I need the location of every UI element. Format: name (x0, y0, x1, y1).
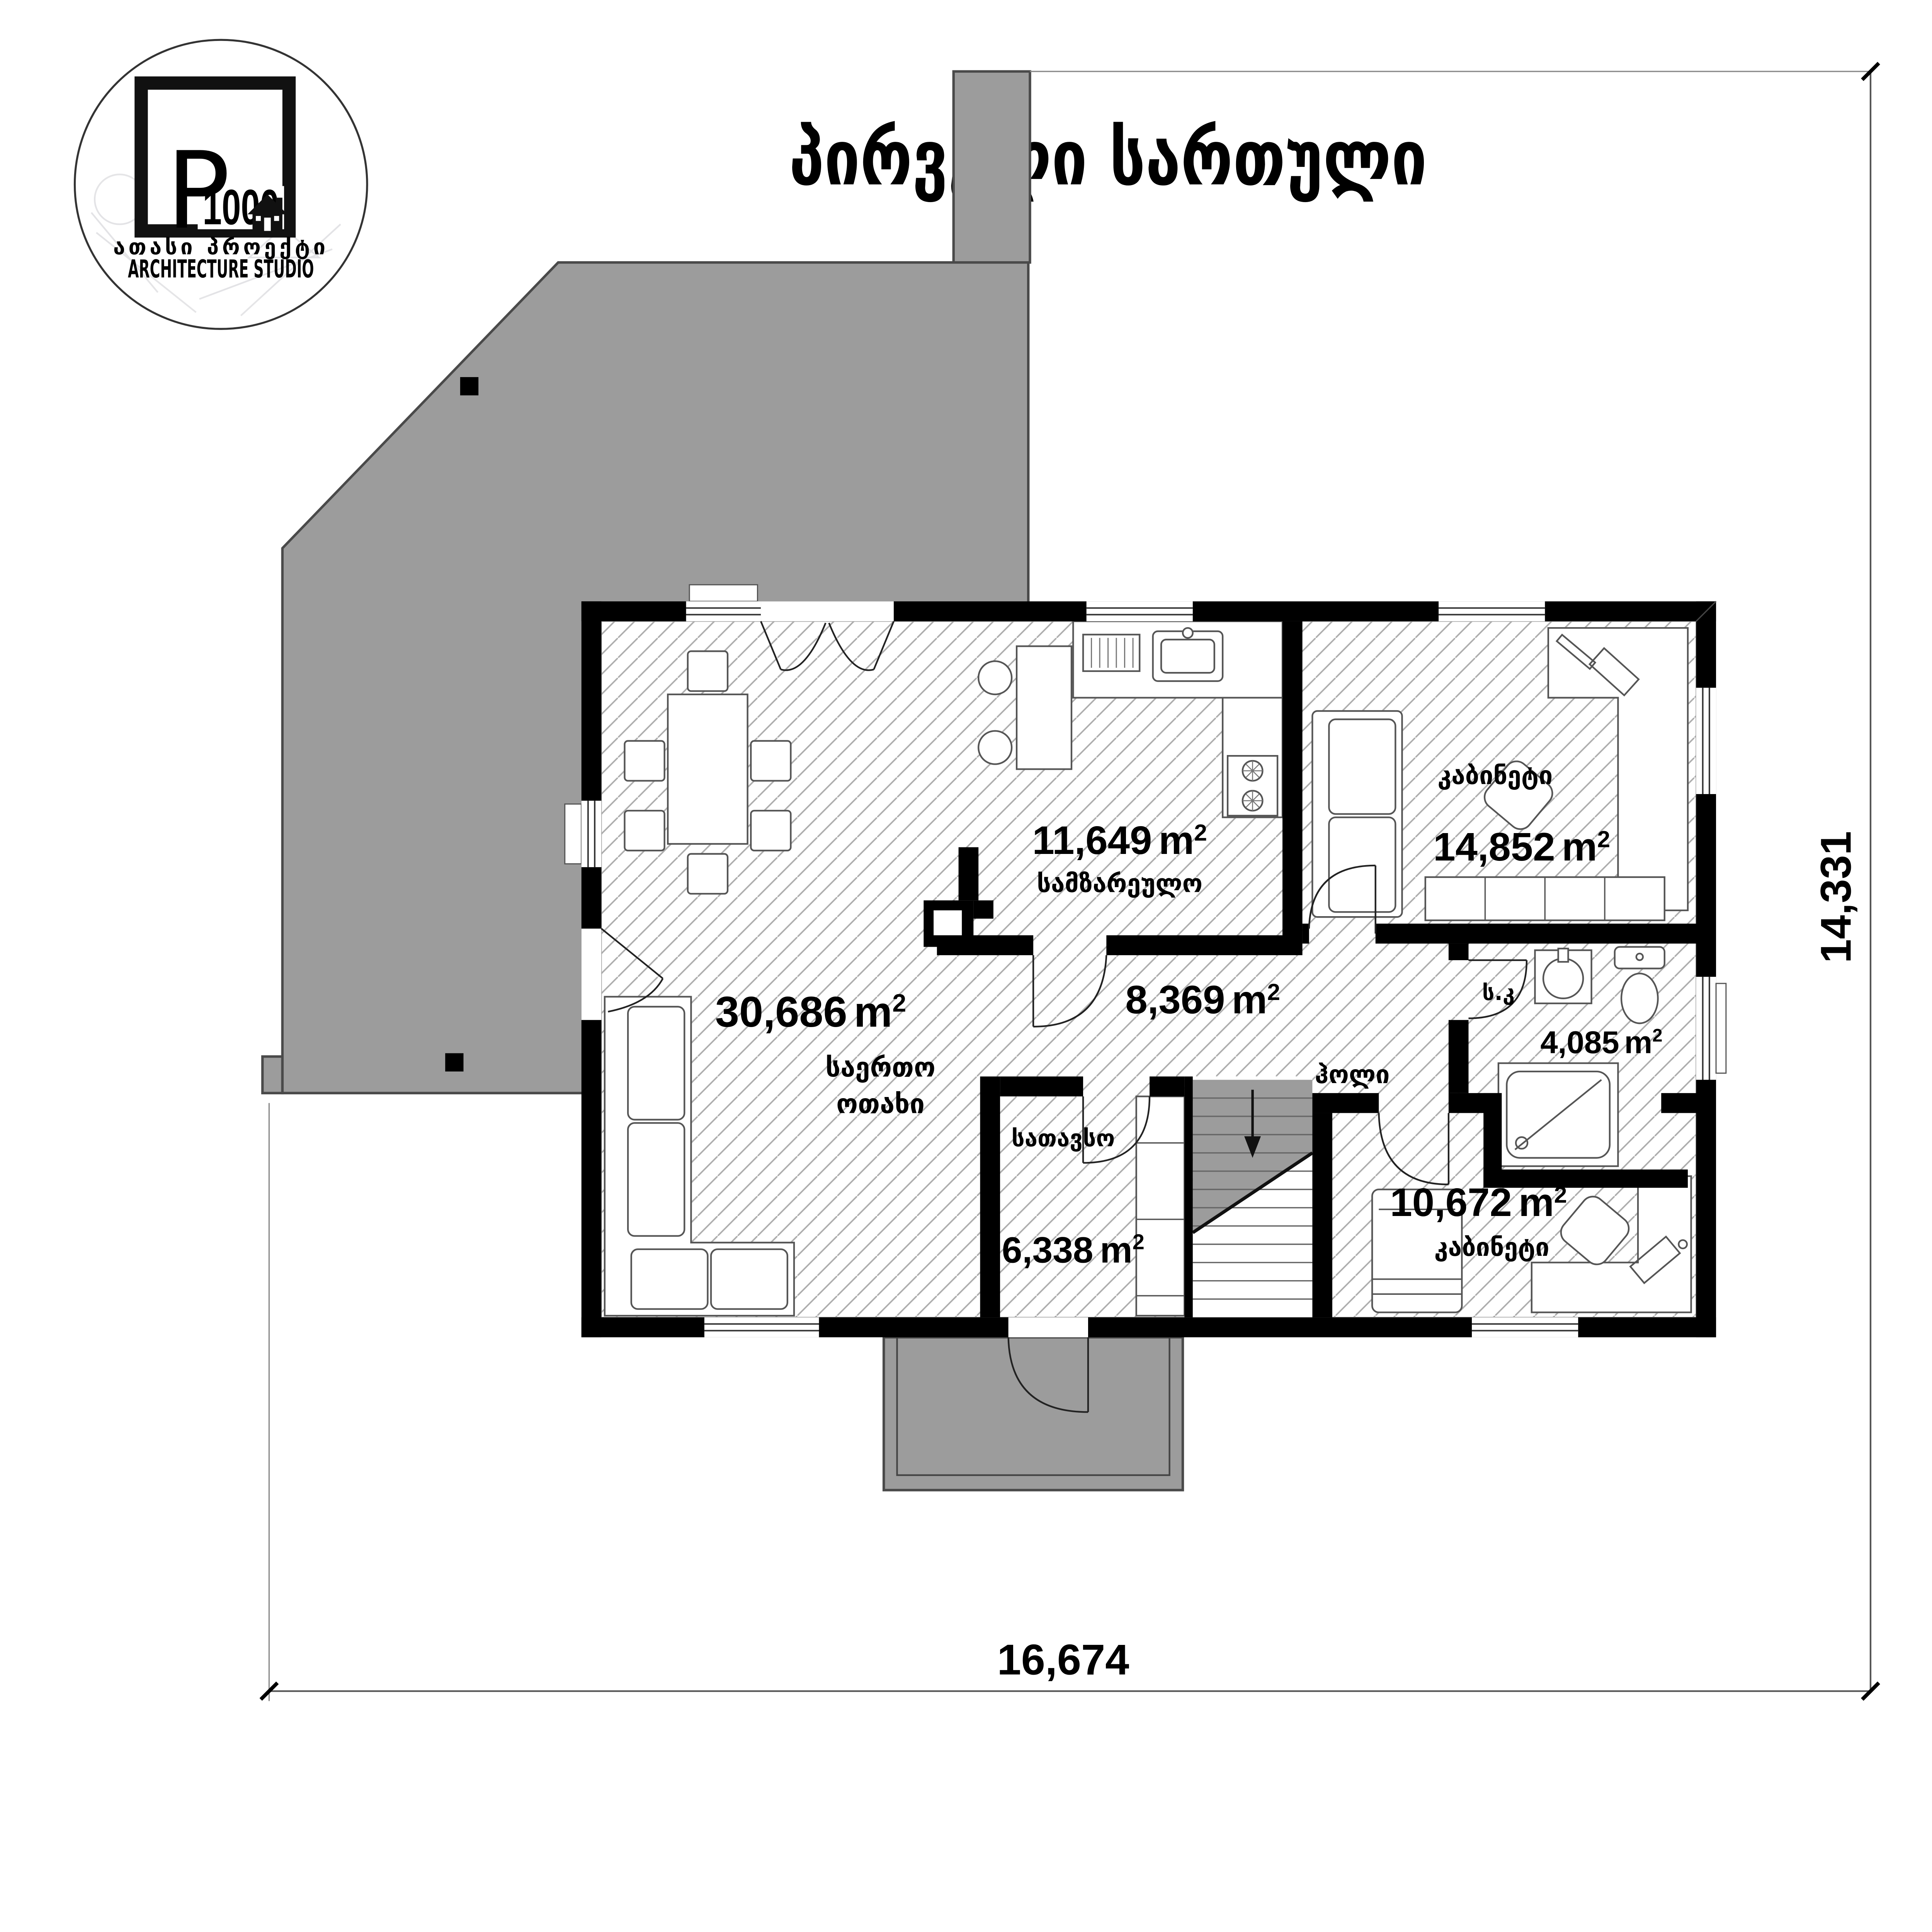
dining-chair (751, 811, 791, 850)
window-sill (689, 585, 757, 601)
room-name: ს.კ (1482, 980, 1515, 1005)
entrance-porch (884, 1337, 1183, 1490)
svg-text:4,085m2: 4,085m2 (1540, 1025, 1662, 1060)
kitchen-island (1017, 646, 1071, 769)
dining-chair (688, 854, 728, 894)
window-right-office (1696, 688, 1716, 794)
wall-office-bath (1376, 923, 1696, 944)
bar-stool (978, 731, 1012, 764)
shower-tray (1498, 1063, 1618, 1167)
terrace-door-opening (582, 929, 602, 1020)
dining-chair (688, 651, 728, 691)
entrance-opening (1009, 1317, 1088, 1337)
bar-stool (978, 661, 1012, 694)
french-door-opening (761, 601, 894, 621)
window-office-upper-top (1439, 601, 1545, 621)
page-title: პირველი სართული (789, 113, 1427, 202)
window-top-living (686, 601, 761, 621)
staircase (1193, 1077, 1313, 1317)
wall-bath-office-lower (1483, 1170, 1688, 1188)
room-name: საერთო (825, 1052, 935, 1083)
cabinet-row (1425, 877, 1665, 920)
sink-tap (1558, 949, 1568, 962)
wall-kitchen-office (1282, 621, 1303, 955)
window-right-bath (1696, 977, 1716, 1080)
svg-text:10,672m2: 10,672m2 (1390, 1180, 1567, 1225)
wall-hall-office-lower (1312, 1093, 1379, 1113)
room-name: ჰოლი (1315, 1060, 1390, 1089)
dining-chair (625, 741, 665, 781)
wall-storage-top (1000, 1077, 1083, 1097)
window-sill (1716, 983, 1726, 1073)
wall-kitchen-hall (1106, 935, 1282, 955)
dining-chair (625, 811, 665, 850)
dining-chair (751, 741, 791, 781)
room-name: ოთახი (836, 1088, 925, 1119)
studio-logo: P 1000 ათასი პროექტი ARCHITECTURE STUDIO (75, 40, 367, 329)
window-bottom-office (1472, 1317, 1578, 1337)
wall-stairs-right (1312, 1113, 1332, 1317)
floor-plan-drawing: P 1000 ათასი პროექტი ARCHITECTURE STUDIO… (0, 0, 1932, 1748)
room-name: კაბინეტი (1434, 1233, 1549, 1262)
window-kitchen (1087, 601, 1193, 621)
sink-faucet (1183, 628, 1193, 638)
terrace-upper-bar (954, 71, 1030, 262)
dimension-width: 16,674 (997, 1636, 1129, 1684)
stove (1228, 756, 1277, 816)
room-name: კაბინეტი (1437, 761, 1553, 790)
logo-subtitle: ARCHITECTURE STUDIO (128, 255, 314, 284)
wall-stairs-left (1184, 1077, 1192, 1317)
room-area: 11,649 (1032, 818, 1152, 862)
window-bottom-living (704, 1317, 819, 1337)
svg-text:11,649m2: 11,649m2 (1032, 818, 1207, 862)
svg-text:30,686m2: 30,686m2 (715, 988, 906, 1036)
dish-rack (1083, 634, 1139, 671)
porch-slab (884, 1337, 1183, 1490)
svg-text:6,338m2: 6,338m2 (1002, 1230, 1145, 1270)
terrace-column (460, 377, 478, 395)
wall-storage-top (1150, 1077, 1184, 1097)
svg-text:14,852m2: 14,852m2 (1433, 825, 1610, 869)
window-sill (565, 804, 582, 864)
dining-table (668, 694, 747, 844)
terrace-step (262, 1056, 282, 1093)
room-label-kitchen: 11,649m2 სამზარეულო (1032, 818, 1207, 898)
wall-storage-left (980, 1077, 1000, 1317)
svg-text:8,369m2: 8,369m2 (1125, 978, 1280, 1022)
dimension-height: 14,331 (1811, 831, 1860, 963)
floor-plan-page: P 1000 ათასი პროექტი ARCHITECTURE STUDIO… (0, 0, 1932, 1748)
wall-bath-left (1449, 944, 1469, 960)
wall-office-bath (1303, 923, 1309, 944)
window-left-living (582, 801, 602, 867)
terrace-column (445, 1053, 463, 1071)
wall-bath-right-stub (1661, 1093, 1696, 1113)
room-name: სამზარეულო (1037, 869, 1202, 898)
wall-bath-left (1449, 1020, 1469, 1093)
room-name: სათავსო (1012, 1125, 1115, 1152)
